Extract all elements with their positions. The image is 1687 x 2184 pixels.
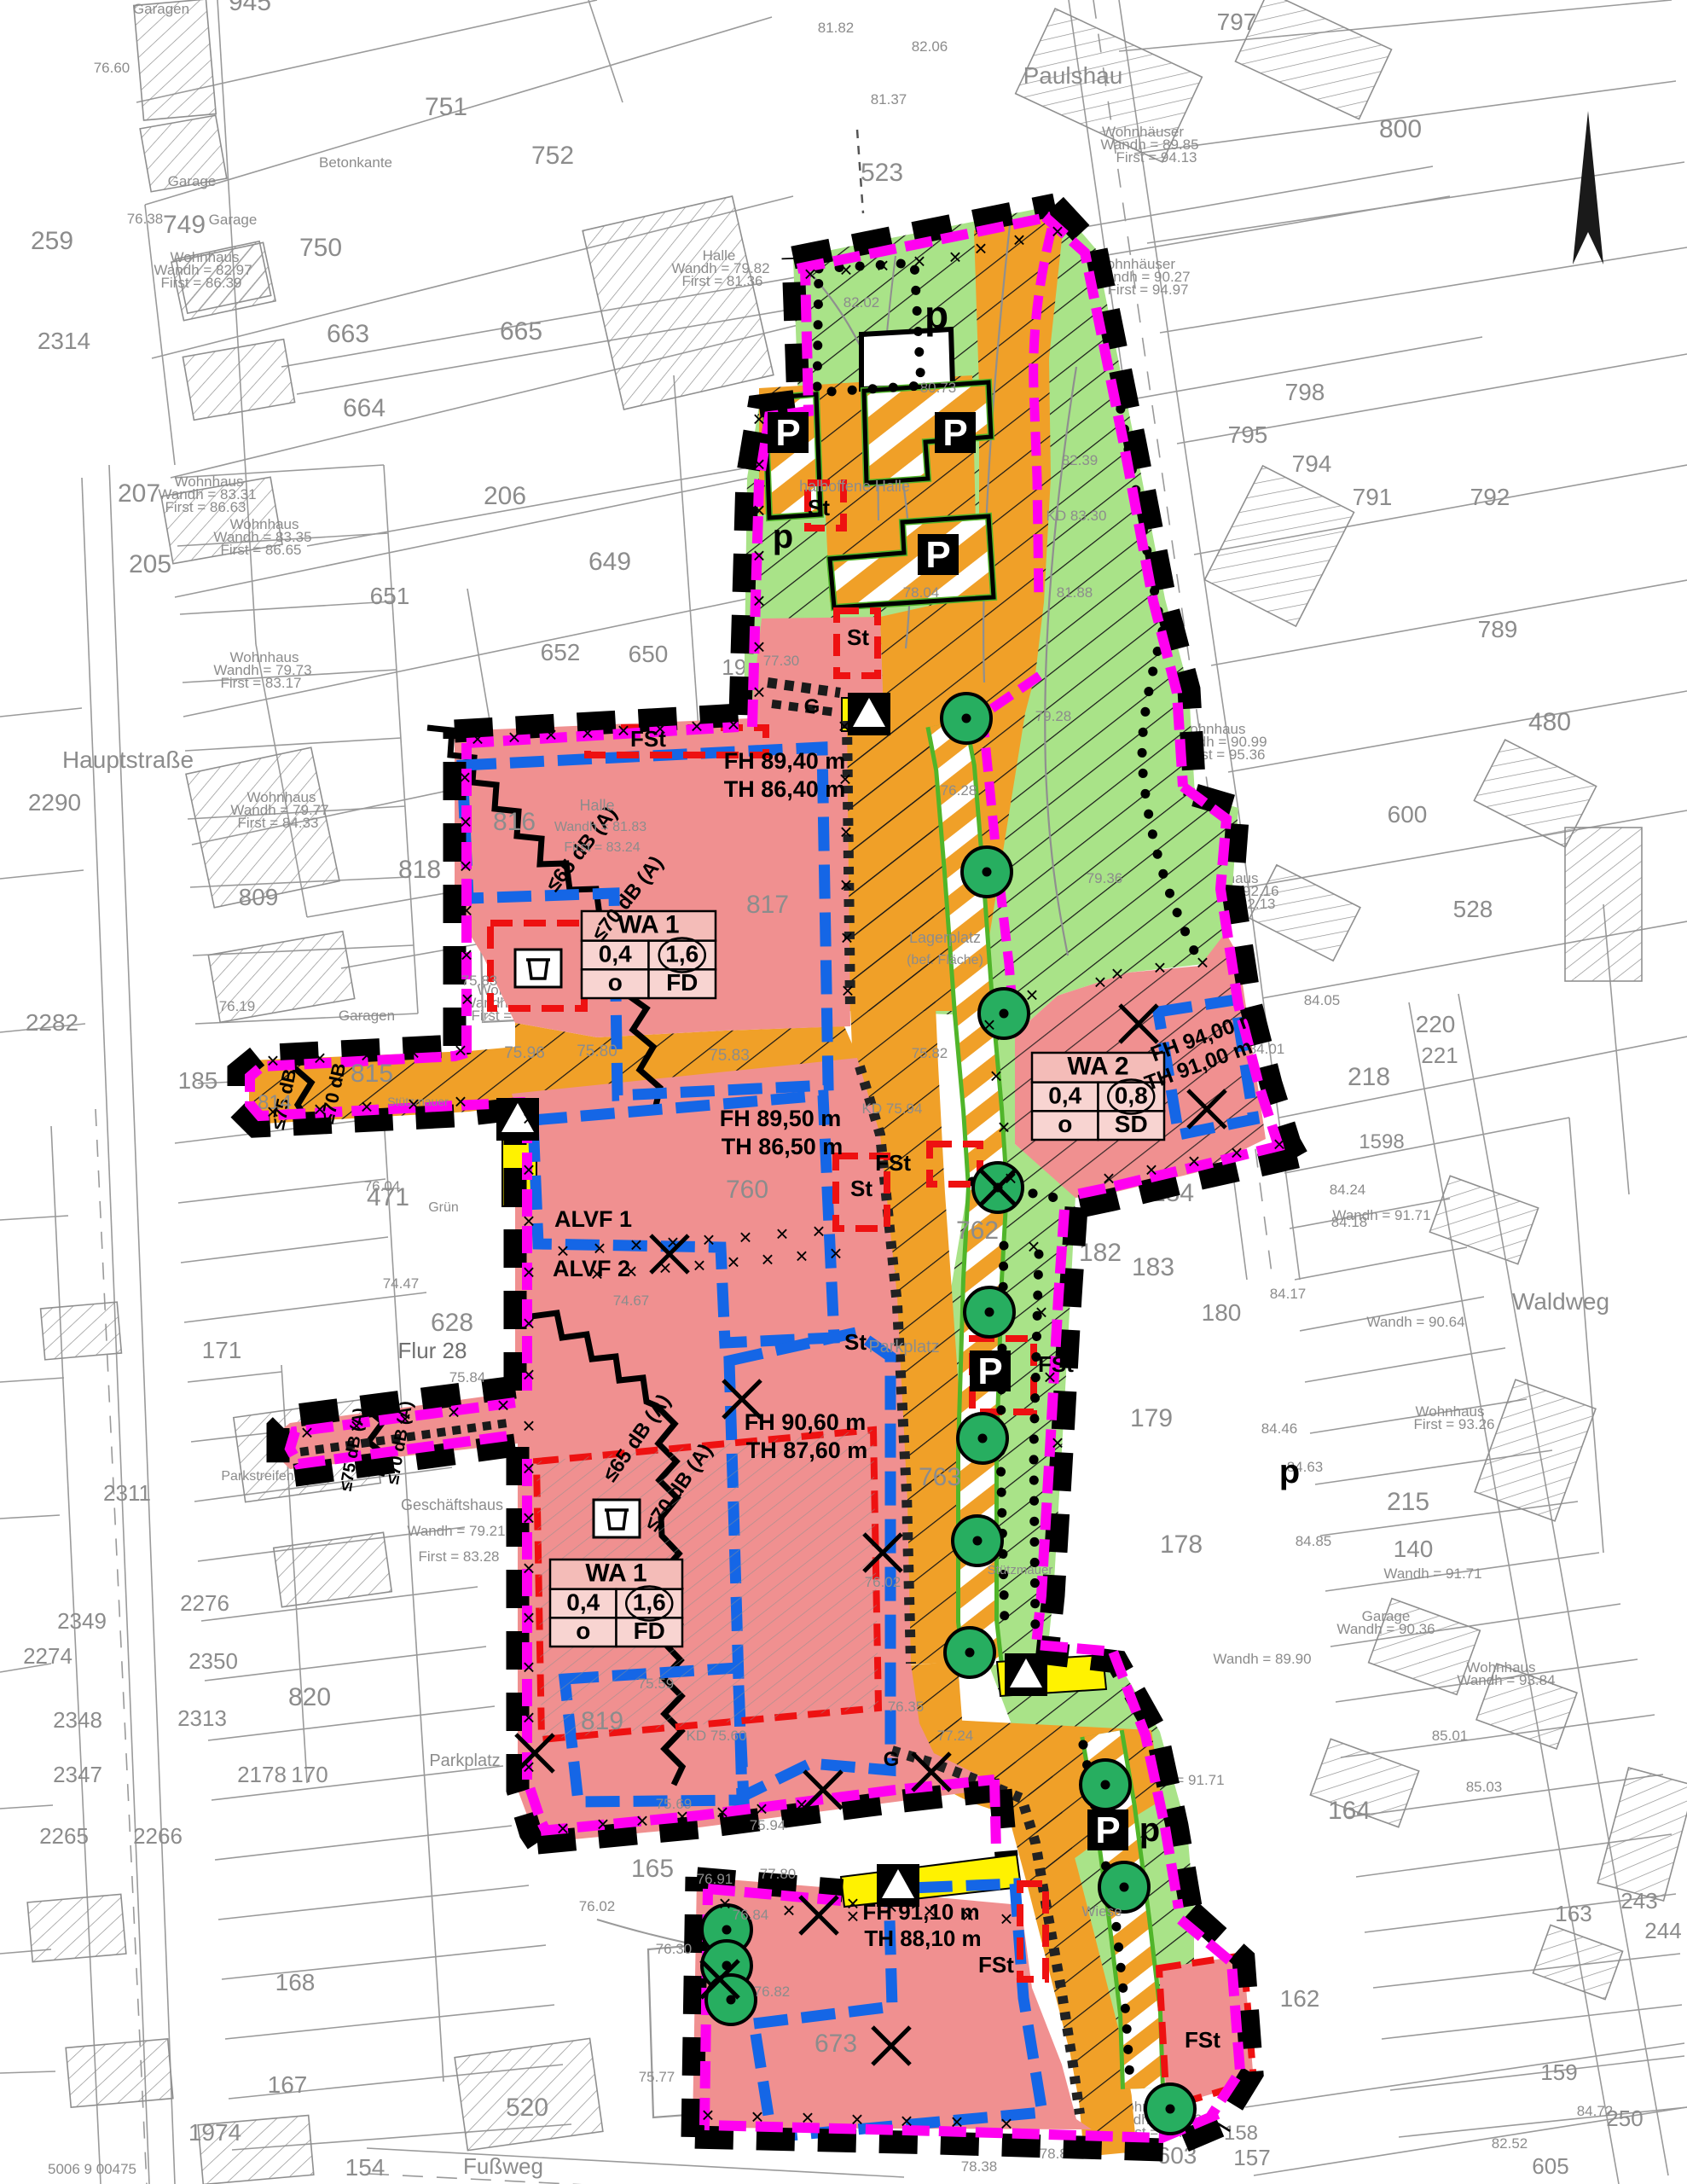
svg-text:×: ×	[727, 712, 739, 737]
svg-text:ALVF 1: ALVF 1	[554, 1206, 632, 1232]
svg-text:×: ×	[775, 1221, 788, 1246]
svg-text:TH 86,40 m: TH 86,40 m	[724, 776, 846, 802]
svg-text:179: 179	[1130, 1404, 1173, 1432]
svg-text:St: St	[847, 624, 869, 650]
svg-text:×: ×	[300, 1420, 313, 1445]
svg-text:First = 86.65: First = 86.65	[221, 542, 302, 558]
svg-text:×: ×	[752, 451, 765, 477]
svg-text:WA 2: WA 2	[1067, 1053, 1128, 1081]
svg-text:×: ×	[829, 1240, 842, 1266]
svg-text:St: St	[844, 1329, 867, 1355]
svg-text:×: ×	[900, 2108, 913, 2134]
svg-text:×: ×	[360, 1043, 373, 1068]
svg-text:Grün: Grün	[428, 1200, 459, 1215]
svg-text:×: ×	[876, 253, 889, 278]
svg-text:85.03: 85.03	[1466, 1779, 1503, 1795]
svg-text:P: P	[925, 534, 950, 576]
svg-text:×: ×	[948, 244, 961, 270]
svg-text:162: 162	[1280, 1985, 1320, 2012]
svg-text:650: 650	[629, 641, 669, 667]
svg-text:205: 205	[129, 550, 171, 578]
svg-text:×: ×	[950, 2109, 963, 2135]
svg-text:×: ×	[693, 1252, 705, 1278]
svg-text:81.88: 81.88	[1057, 584, 1093, 601]
svg-text:76.82: 76.82	[754, 1984, 791, 2000]
svg-text:SD: SD	[1115, 1111, 1148, 1137]
svg-text:Wandh = 91.71: Wandh = 91.71	[1383, 1565, 1481, 1582]
svg-text:76.19: 76.19	[219, 998, 256, 1014]
svg-text:168: 168	[275, 1969, 316, 1995]
svg-text:×: ×	[593, 1235, 606, 1261]
svg-text:795: 795	[1228, 421, 1268, 448]
svg-text:Paulshau: Paulshau	[1023, 62, 1123, 89]
svg-text:p: p	[1279, 1453, 1300, 1490]
svg-text:84.72: 84.72	[1577, 2103, 1614, 2119]
svg-text:×: ×	[752, 588, 765, 613]
svg-text:×: ×	[407, 1091, 420, 1117]
svg-text:×: ×	[983, 1012, 995, 1037]
svg-text:×: ×	[360, 1094, 373, 1119]
svg-text:×: ×	[989, 1063, 1002, 1089]
svg-text:Parkstreifen: Parkstreifen	[221, 1469, 293, 1484]
svg-text:79.36: 79.36	[1087, 870, 1123, 886]
svg-text:TH 88,10 m: TH 88,10 m	[864, 1926, 981, 1951]
svg-text:×: ×	[556, 1238, 569, 1263]
svg-text:2347: 2347	[53, 1762, 102, 1787]
svg-text:78.38: 78.38	[961, 2158, 998, 2175]
svg-text:75.77: 75.77	[639, 2069, 675, 2085]
svg-text:1598: 1598	[1359, 1130, 1404, 1153]
svg-text:Garage: Garage	[168, 173, 217, 189]
svg-text:×: ×	[718, 1891, 731, 1916]
svg-text:Garagen: Garagen	[133, 1, 189, 17]
svg-text:165: 165	[631, 1855, 674, 1883]
svg-text:×: ×	[727, 1249, 739, 1275]
svg-text:76.02: 76.02	[579, 1898, 616, 1914]
svg-text:183: 183	[1132, 1253, 1174, 1281]
svg-text:×: ×	[782, 1897, 795, 1923]
svg-text:×: ×	[752, 634, 765, 659]
svg-text:×: ×	[522, 1259, 535, 1285]
svg-text:76.91: 76.91	[697, 1871, 733, 1887]
svg-text:794: 794	[1292, 450, 1332, 477]
svg-text:×: ×	[801, 2105, 814, 2130]
svg-text:p: p	[925, 293, 948, 337]
svg-text:St: St	[808, 495, 830, 520]
svg-text:×: ×	[1196, 950, 1209, 975]
svg-text:First = 83.17: First = 83.17	[221, 675, 302, 691]
svg-text:81.37: 81.37	[871, 91, 907, 107]
svg-text:×: ×	[522, 1654, 535, 1680]
svg-text:82.06: 82.06	[912, 38, 948, 55]
svg-text:KD 83.30: KD 83.30	[1046, 508, 1107, 524]
svg-text:2266: 2266	[133, 1823, 183, 1849]
svg-text:×: ×	[459, 809, 472, 834]
svg-text:0,4: 0,4	[1048, 1082, 1081, 1108]
svg-text:×: ×	[1000, 1906, 1012, 1931]
svg-text:84.05: 84.05	[1304, 992, 1341, 1008]
svg-text:×: ×	[1238, 944, 1251, 969]
svg-text:76.02: 76.02	[865, 1574, 901, 1590]
svg-text:77.80: 77.80	[760, 1866, 797, 1882]
svg-text:652: 652	[541, 639, 581, 665]
svg-text:2290: 2290	[28, 789, 81, 816]
svg-text:480: 480	[1528, 708, 1571, 736]
svg-text:First = 86.39: First = 86.39	[161, 275, 242, 291]
svg-text:×: ×	[884, 1894, 897, 1920]
svg-text:Wandh = 93.84: Wandh = 93.84	[1457, 1672, 1555, 1688]
svg-text:Stützmauer: Stützmauer	[988, 1563, 1053, 1577]
svg-text:0,4: 0,4	[566, 1589, 600, 1615]
svg-text:KD 75.60: KD 75.60	[687, 1728, 747, 1744]
svg-text:84.24: 84.24	[1330, 1182, 1366, 1198]
svg-text:154: 154	[345, 2154, 386, 2181]
svg-text:818: 818	[398, 856, 441, 884]
svg-text:×: ×	[522, 1208, 535, 1234]
svg-text:G: G	[804, 695, 820, 718]
svg-text:×: ×	[624, 1258, 637, 1284]
svg-text:1,6: 1,6	[633, 1589, 666, 1615]
svg-text:×: ×	[522, 1705, 535, 1730]
svg-text:Geschäftshaus: Geschäftshaus	[401, 1496, 503, 1513]
svg-text:2350: 2350	[188, 1648, 238, 1674]
svg-text:×: ×	[1035, 1299, 1047, 1325]
svg-text:140: 140	[1394, 1536, 1434, 1562]
svg-text:×: ×	[752, 497, 765, 523]
svg-text:259: 259	[31, 227, 73, 255]
svg-text:763: 763	[919, 1463, 961, 1491]
svg-text:×: ×	[840, 925, 853, 950]
svg-text:76.28: 76.28	[941, 782, 977, 799]
svg-text:First = 86.63: First = 86.63	[165, 499, 246, 515]
svg-text:FSt: FSt	[875, 1150, 911, 1176]
svg-text:76.84: 76.84	[733, 1907, 769, 1923]
svg-text:×: ×	[471, 726, 484, 752]
svg-text:605: 605	[1532, 2153, 1568, 2179]
svg-text:×: ×	[454, 1089, 467, 1114]
svg-text:78.04: 78.04	[903, 584, 940, 601]
svg-text:800: 800	[1379, 115, 1422, 143]
svg-text:163: 163	[1555, 1901, 1591, 1926]
svg-text:FSt: FSt	[978, 1952, 1014, 1978]
svg-text:75.80: 75.80	[577, 1043, 617, 1060]
svg-text:651: 651	[370, 583, 410, 609]
svg-text:76.04: 76.04	[364, 1178, 401, 1194]
svg-text:×: ×	[846, 1903, 859, 1929]
svg-text:0,8: 0,8	[1115, 1082, 1148, 1108]
svg-text:×: ×	[556, 1815, 569, 1841]
svg-text:2348: 2348	[53, 1707, 102, 1733]
svg-text:5006 9 00475: 5006 9 00475	[48, 2161, 136, 2177]
svg-text:75.96: 75.96	[504, 1044, 545, 1062]
svg-text:Garagen: Garagen	[339, 1008, 395, 1024]
svg-text:×: ×	[838, 713, 850, 739]
svg-text:×: ×	[544, 722, 557, 747]
svg-text:85.01: 85.01	[1432, 1728, 1469, 1744]
svg-text:Flur 28: Flur 28	[398, 1338, 467, 1363]
svg-text:o: o	[1058, 1111, 1072, 1137]
svg-text:Parkplatz: Parkplatz	[429, 1751, 500, 1770]
svg-text:×: ×	[1272, 1131, 1285, 1157]
svg-text:Wandh = 81.83: Wandh = 81.83	[554, 820, 646, 834]
svg-text:×: ×	[739, 1224, 751, 1250]
svg-text:×: ×	[522, 1310, 535, 1336]
svg-text:2274: 2274	[23, 1643, 72, 1669]
svg-text:×: ×	[507, 724, 520, 750]
svg-text:819: 819	[581, 1707, 623, 1735]
svg-text:215: 215	[1387, 1488, 1429, 1516]
svg-text:×: ×	[1043, 1364, 1056, 1390]
svg-text:1,6: 1,6	[665, 940, 699, 967]
svg-text:×: ×	[460, 942, 472, 967]
svg-text:84.17: 84.17	[1270, 1286, 1307, 1302]
svg-text:207: 207	[118, 479, 160, 508]
svg-text:First = 94.13: First = 94.13	[1116, 149, 1197, 166]
svg-text:First = 94.97: First = 94.97	[1108, 282, 1189, 298]
svg-text:×: ×	[1027, 1234, 1040, 1259]
svg-text:×: ×	[795, 1243, 808, 1269]
svg-text:×: ×	[761, 1246, 774, 1272]
svg-text:2178: 2178	[237, 1762, 287, 1787]
svg-text:×: ×	[850, 2106, 863, 2132]
svg-text:×: ×	[974, 235, 987, 261]
svg-text:74.47: 74.47	[383, 1275, 420, 1292]
svg-text:243: 243	[1620, 1888, 1657, 1914]
svg-text:76.60: 76.60	[94, 60, 130, 76]
svg-text:1974: 1974	[188, 2119, 241, 2146]
svg-text:o: o	[576, 1618, 590, 1644]
svg-text:171: 171	[202, 1337, 242, 1363]
svg-text:206: 206	[484, 482, 526, 510]
svg-text:×: ×	[1110, 961, 1123, 986]
svg-text:×: ×	[581, 720, 594, 746]
svg-text:×: ×	[350, 1413, 362, 1438]
svg-text:×: ×	[666, 1229, 679, 1255]
svg-text:809: 809	[239, 884, 279, 910]
svg-text:×: ×	[407, 1040, 420, 1066]
svg-text:First = 84.33: First = 84.33	[238, 815, 319, 831]
svg-text:Wandh = 79.21: Wandh = 79.21	[407, 1523, 505, 1539]
svg-text:×: ×	[812, 1218, 825, 1244]
svg-text:760: 760	[726, 1176, 768, 1204]
svg-text:×: ×	[1145, 1157, 1157, 1182]
svg-text:×: ×	[839, 257, 852, 282]
svg-text:×: ×	[522, 1157, 535, 1182]
svg-text:178: 178	[1160, 1531, 1203, 1559]
svg-text:×: ×	[635, 1808, 648, 1833]
svg-text:FH 90,60 m: FH 90,60 m	[745, 1409, 867, 1435]
svg-text:Hauptstraße: Hauptstraße	[62, 746, 194, 773]
svg-text:×: ×	[522, 1455, 535, 1481]
svg-text:×: ×	[458, 764, 471, 790]
svg-text:TH 87,60 m: TH 87,60 m	[746, 1438, 868, 1463]
svg-text:789: 789	[1478, 616, 1518, 642]
svg-text:×: ×	[1025, 982, 1038, 1008]
svg-text:×: ×	[266, 1048, 279, 1073]
svg-text:157: 157	[1233, 2145, 1270, 2170]
svg-text:816: 816	[493, 808, 536, 836]
svg-text:×: ×	[752, 543, 765, 568]
svg-text:820: 820	[288, 1683, 331, 1711]
svg-text:×: ×	[522, 1106, 535, 1131]
svg-text:×: ×	[1102, 1165, 1115, 1191]
svg-text:750: 750	[299, 234, 342, 262]
svg-text:77.24: 77.24	[937, 1728, 974, 1744]
svg-text:75.84: 75.84	[449, 1369, 486, 1385]
svg-text:o: o	[608, 969, 623, 996]
svg-text:798: 798	[1285, 379, 1325, 405]
svg-text:×: ×	[496, 1392, 509, 1418]
svg-text:G: G	[884, 1748, 900, 1771]
svg-text:×: ×	[266, 1099, 279, 1124]
svg-text:FSt: FSt	[1185, 2027, 1220, 2053]
svg-text:797: 797	[1217, 9, 1257, 35]
svg-text:170: 170	[291, 1762, 328, 1787]
svg-text:FH 89,50 m: FH 89,50 m	[720, 1106, 842, 1131]
svg-text:76.38: 76.38	[127, 211, 164, 227]
svg-text:74.67: 74.67	[613, 1292, 650, 1309]
svg-text:×: ×	[839, 819, 852, 845]
svg-text:×: ×	[1153, 955, 1166, 980]
svg-text:2265: 2265	[39, 1823, 89, 1849]
svg-text:×: ×	[460, 897, 472, 923]
svg-text:Wandh = 90.36: Wandh = 90.36	[1336, 1621, 1435, 1637]
svg-text:945: 945	[229, 0, 271, 16]
svg-text:×: ×	[658, 1255, 671, 1281]
svg-text:×: ×	[629, 1232, 642, 1258]
svg-text:82.39: 82.39	[1062, 452, 1099, 468]
svg-text:×: ×	[1004, 1165, 1017, 1191]
svg-text:halboffene Halle: halboffene Halle	[799, 478, 910, 495]
svg-text:Lagerplatz: Lagerplatz	[909, 929, 981, 946]
svg-text:792: 792	[1470, 484, 1510, 510]
svg-text:159: 159	[1540, 2059, 1577, 2085]
svg-text:2349: 2349	[57, 1608, 107, 1634]
svg-text:244: 244	[1644, 1918, 1681, 1943]
svg-text:×: ×	[923, 1898, 936, 1924]
svg-text:×: ×	[522, 1555, 535, 1581]
svg-text:FD: FD	[634, 1618, 665, 1644]
svg-text:80.73: 80.73	[920, 380, 957, 396]
svg-text:×: ×	[701, 2102, 714, 2128]
svg-text:×: ×	[522, 1413, 535, 1438]
svg-text:Wandh = 89.90: Wandh = 89.90	[1213, 1651, 1311, 1667]
svg-text:TH 86,50 m: TH 86,50 m	[722, 1134, 843, 1159]
svg-text:×: ×	[1051, 218, 1064, 244]
svg-text:×: ×	[803, 261, 816, 287]
svg-text:81.82: 81.82	[818, 20, 855, 36]
svg-text:×: ×	[961, 1902, 974, 1928]
svg-text:×: ×	[522, 1362, 535, 1387]
svg-text:×: ×	[841, 978, 854, 1003]
svg-text:Wiese: Wiese	[1081, 1903, 1122, 1920]
svg-text:P: P	[977, 1350, 1002, 1392]
svg-text:665: 665	[500, 317, 542, 346]
svg-text:×: ×	[755, 1796, 768, 1821]
svg-text:751: 751	[425, 93, 467, 121]
svg-text:77.30: 77.30	[763, 653, 800, 669]
svg-text:St: St	[850, 1176, 872, 1201]
svg-text:×: ×	[690, 713, 703, 739]
svg-text:2276: 2276	[180, 1590, 229, 1616]
svg-text:Parkplatz: Parkplatz	[868, 1338, 939, 1356]
svg-text:×: ×	[313, 1096, 326, 1122]
svg-text:×: ×	[795, 1792, 808, 1817]
svg-text:p: p	[773, 518, 793, 555]
svg-text:×: ×	[522, 1754, 535, 1780]
svg-text:×: ×	[1187, 1148, 1200, 1174]
svg-text:2311: 2311	[103, 1480, 151, 1506]
svg-text:649: 649	[588, 548, 631, 576]
svg-text:×: ×	[617, 717, 629, 743]
svg-text:×: ×	[590, 1261, 603, 1287]
svg-text:2314: 2314	[38, 328, 90, 354]
svg-text:664: 664	[343, 394, 386, 422]
svg-text:×: ×	[913, 248, 925, 274]
svg-text:FH 89,40 m: FH 89,40 m	[724, 748, 846, 774]
svg-text:82.52: 82.52	[1492, 2135, 1528, 2152]
svg-text:×: ×	[454, 1037, 467, 1063]
svg-text:791: 791	[1353, 484, 1393, 510]
svg-text:×: ×	[461, 986, 473, 1012]
svg-text:×: ×	[313, 1045, 326, 1071]
svg-text:P: P	[942, 412, 967, 454]
svg-text:218: 218	[1348, 1063, 1390, 1091]
svg-text:76.30: 76.30	[656, 1941, 693, 1957]
svg-text:Fußweg: Fußweg	[463, 2153, 543, 2179]
svg-text:×: ×	[398, 1406, 411, 1432]
svg-text:×: ×	[596, 1811, 609, 1837]
svg-text:663: 663	[327, 320, 369, 348]
svg-text:First = 93.26: First = 93.26	[1414, 1416, 1495, 1432]
svg-text:×: ×	[1051, 1430, 1064, 1455]
svg-text:×: ×	[838, 766, 851, 792]
svg-text:520: 520	[506, 2094, 548, 2122]
svg-text:×: ×	[752, 406, 765, 432]
svg-text:(bef. Fläche): (bef. Fläche)	[907, 953, 983, 967]
svg-text:×: ×	[751, 2104, 763, 2129]
svg-text:167: 167	[268, 2071, 308, 2098]
svg-text:2282: 2282	[26, 1009, 78, 1036]
svg-text:185: 185	[178, 1067, 218, 1094]
svg-text:220: 220	[1416, 1011, 1456, 1037]
svg-text:84.85: 84.85	[1296, 1533, 1332, 1549]
svg-text:×: ×	[447, 1399, 460, 1425]
svg-text:84.18: 84.18	[1331, 1214, 1368, 1230]
svg-text:628: 628	[431, 1309, 473, 1337]
svg-text:82.02: 82.02	[843, 294, 880, 311]
svg-text:×: ×	[1000, 2111, 1012, 2136]
svg-text:158: 158	[1224, 2122, 1258, 2145]
svg-text:×: ×	[522, 1505, 535, 1531]
svg-text:FD: FD	[666, 969, 698, 996]
svg-text:76.35: 76.35	[888, 1699, 925, 1715]
svg-text:749: 749	[163, 211, 206, 239]
svg-text:×: ×	[1093, 969, 1106, 995]
svg-text:Halle: Halle	[579, 797, 614, 814]
svg-text:×: ×	[653, 716, 666, 741]
svg-text:221: 221	[1421, 1043, 1458, 1068]
svg-text:×: ×	[702, 1227, 715, 1252]
svg-text:First = 83.28: First = 83.28	[419, 1548, 500, 1565]
svg-text:75.83: 75.83	[709, 1047, 750, 1065]
svg-text:p: p	[1139, 1811, 1160, 1849]
svg-text:75.82: 75.82	[912, 1045, 948, 1061]
svg-text:First = 83.24: First = 83.24	[564, 840, 640, 855]
svg-text:Betonkante: Betonkante	[319, 154, 392, 171]
svg-text:523: 523	[861, 159, 903, 187]
svg-text:P: P	[775, 412, 800, 454]
